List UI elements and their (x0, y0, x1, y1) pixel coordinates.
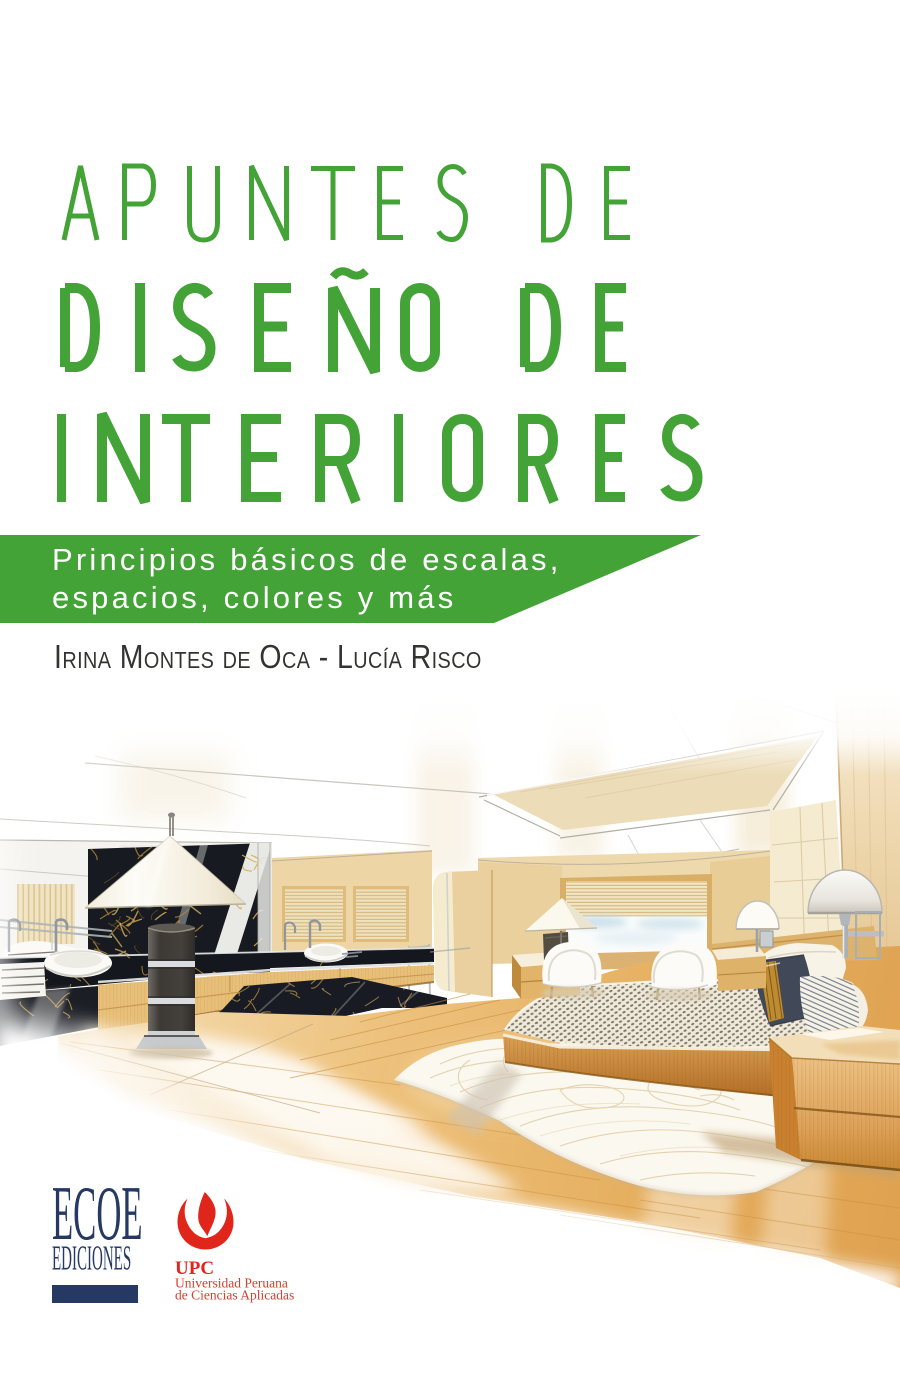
svg-text:de Ciencias Aplicadas: de Ciencias Aplicadas (175, 1288, 294, 1303)
